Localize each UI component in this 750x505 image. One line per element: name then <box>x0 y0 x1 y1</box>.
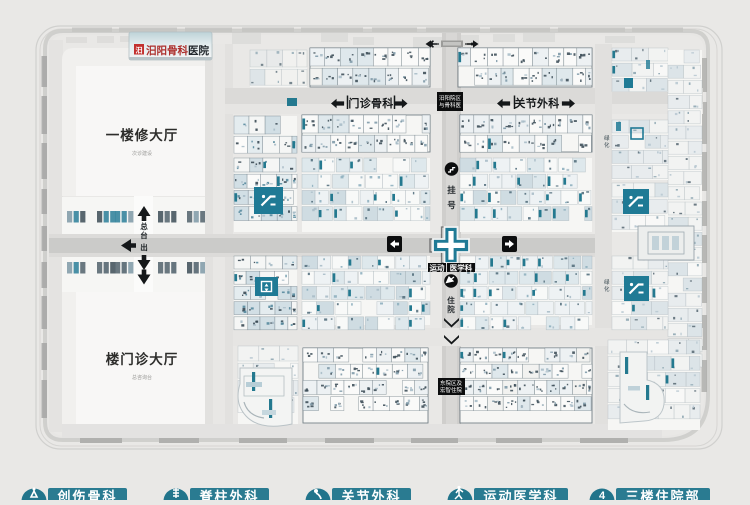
svg-text:住: 住 <box>447 295 455 305</box>
svg-text:创伤骨科: 创伤骨科 <box>56 489 117 500</box>
svg-text:绿: 绿 <box>604 278 610 286</box>
svg-text:4: 4 <box>599 490 606 500</box>
svg-text:宏智住院: 宏智住院 <box>440 386 463 394</box>
svg-text:三楼住院部: 三楼住院部 <box>625 489 700 500</box>
svg-text:关节外科: 关节外科 <box>341 489 401 500</box>
svg-text:化: 化 <box>604 285 610 293</box>
svg-text:次诊建设: 次诊建设 <box>132 150 152 157</box>
svg-text:一楼修大厅: 一楼修大厅 <box>106 127 179 143</box>
svg-text:汨阳骨科: 汨阳骨科 <box>146 44 188 57</box>
svg-text:化: 化 <box>604 141 610 149</box>
svg-text:挂: 挂 <box>447 185 456 195</box>
svg-text:门诊骨科: 门诊骨科 <box>348 96 393 110</box>
svg-text:与骨科医: 与骨科医 <box>439 101 462 109</box>
svg-text:医学科: 医学科 <box>450 263 473 273</box>
svg-text:总咨询台: 总咨询台 <box>132 374 152 381</box>
svg-text:楼门诊大厅: 楼门诊大厅 <box>106 351 179 367</box>
svg-text:东院区及: 东院区及 <box>440 379 463 387</box>
svg-text:医院: 医院 <box>188 44 209 57</box>
svg-text:汨阳院区: 汨阳院区 <box>439 94 462 102</box>
svg-text:总: 总 <box>140 221 148 231</box>
svg-text:绿: 绿 <box>604 134 610 142</box>
svg-text:号: 号 <box>447 200 456 210</box>
svg-text:出: 出 <box>140 242 148 252</box>
svg-text:台: 台 <box>140 230 148 240</box>
svg-text:关节外科: 关节外科 <box>514 96 559 110</box>
svg-text:院: 院 <box>447 304 455 314</box>
svg-text:脊柱外科: 脊柱外科 <box>198 489 259 500</box>
svg-text:运动: 运动 <box>430 263 445 273</box>
svg-text:运动医学科: 运动医学科 <box>483 489 558 500</box>
svg-text:汨: 汨 <box>136 46 143 55</box>
